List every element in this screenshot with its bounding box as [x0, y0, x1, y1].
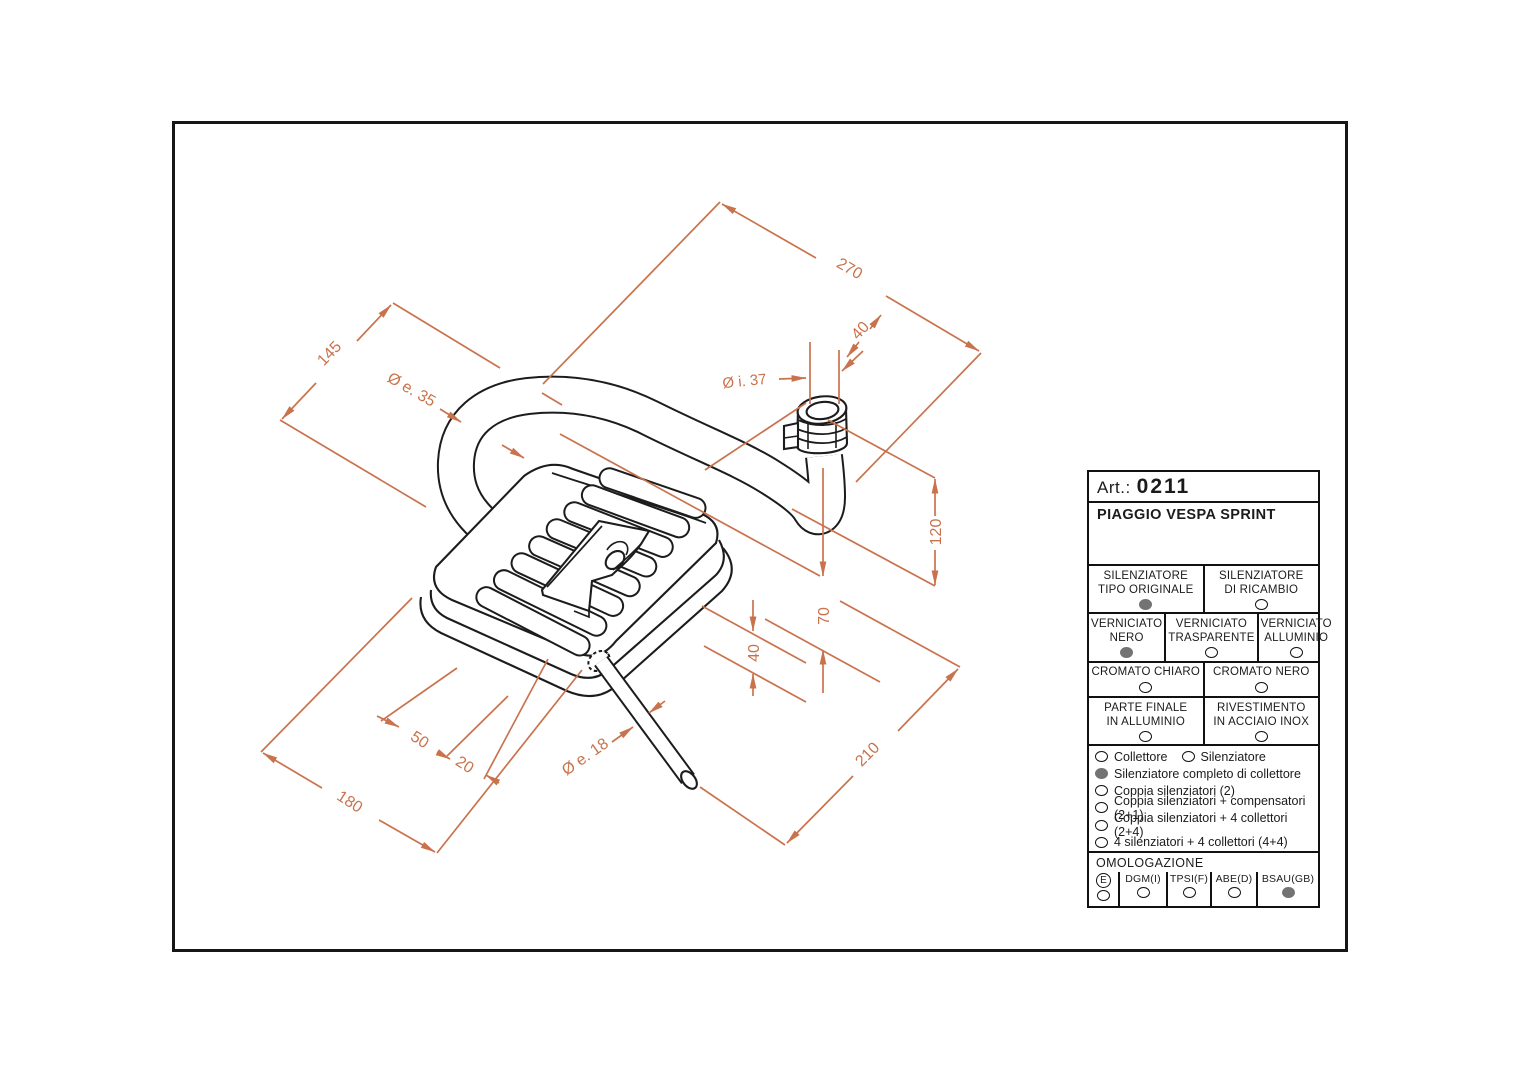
option-rivestimento-inox[interactable]: RIVESTIMENTOIN ACCIAIO INOX	[1203, 698, 1319, 744]
paint-finish-row: VERNICIATONERO VERNICIATOTRASPARENTE VER…	[1089, 614, 1318, 663]
dim-50: 50	[407, 728, 431, 752]
dim-inner-diameter-37: Ø i. 37	[722, 371, 768, 393]
tail-pipe	[601, 661, 700, 792]
material-row: PARTE FINALEIN ALLUMINIO RIVESTIMENTOIN …	[1089, 698, 1318, 746]
radio-verniciato-alluminio[interactable]	[1290, 647, 1303, 658]
dim-270: 270	[833, 255, 865, 283]
option-parte-finale-alluminio[interactable]: PARTE FINALEIN ALLUMINIO	[1089, 698, 1203, 744]
article-number: 0211	[1137, 475, 1191, 499]
option-cromato-nero[interactable]: CROMATO NERO	[1203, 663, 1319, 696]
kit-options-list: Collettore Silenziatore Silenziatore com…	[1089, 746, 1318, 853]
homologation-block: OMOLOGAZIONE E DGM(I) TPSI(F) ABE(D)	[1089, 853, 1318, 906]
silencer-type-row: SILENZIATORETIPO ORIGINALE SILENZIATORED…	[1089, 566, 1318, 614]
circled-e-icon: E	[1096, 873, 1111, 888]
radio-coppia-compensatori[interactable]	[1095, 802, 1108, 813]
option-silenziatore-tipo-originale[interactable]: SILENZIATORETIPO ORIGINALE	[1089, 566, 1203, 612]
article-row: Art.: 0211	[1089, 472, 1318, 503]
chrome-finish-row: CROMATO CHIARO CROMATO NERO	[1089, 663, 1318, 698]
dim-145: 145	[314, 338, 345, 369]
radio-homologation-dgm[interactable]	[1137, 887, 1150, 898]
homologation-entries: E DGM(I) TPSI(F) ABE(D) BSAU(GB)	[1089, 872, 1318, 906]
product-data-panel: Art.: 0211 PIAGGIO VESPA SPRINT SILENZIA…	[1087, 470, 1320, 908]
homologation-title: OMOLOGAZIONE	[1089, 853, 1318, 872]
radio-silenziatore-completo[interactable]	[1095, 768, 1108, 779]
radio-di-ricambio[interactable]	[1255, 599, 1268, 610]
radio-parte-finale[interactable]	[1139, 731, 1152, 742]
radio-homologation-bsau[interactable]	[1282, 887, 1295, 898]
dim-outer-diameter-18: Ø e. 18	[559, 735, 612, 779]
homologation-dgm[interactable]: DGM(I)	[1118, 872, 1166, 906]
radio-coppia-silenziatori[interactable]	[1095, 785, 1108, 796]
dim-outer-diameter-35: Ø e. 35	[384, 370, 438, 411]
article-label: Art.:	[1097, 478, 1131, 498]
dim-70: 70	[816, 607, 833, 625]
option-verniciato-trasparente[interactable]: VERNICIATOTRASPARENTE	[1164, 614, 1256, 661]
list-item: Collettore Silenziatore	[1095, 748, 1318, 765]
radio-homologation-e[interactable]	[1097, 890, 1110, 901]
radio-homologation-abe[interactable]	[1228, 887, 1241, 898]
list-item: Silenziatore completo di collettore	[1095, 765, 1318, 782]
radio-4-silenziatori[interactable]	[1095, 837, 1108, 848]
homologation-e[interactable]: E	[1089, 872, 1118, 906]
radio-cromato-nero[interactable]	[1255, 682, 1268, 693]
option-cromato-chiaro[interactable]: CROMATO CHIARO	[1089, 663, 1203, 696]
technical-drawing-sheet: 270 40 Ø i. 37 145 Ø e. 35 120 70 40 210…	[0, 0, 1519, 1075]
option-silenziatore-di-ricambio[interactable]: SILENZIATOREDI RICAMBIO	[1203, 566, 1319, 612]
muffler-assembly	[420, 394, 848, 792]
dim-120: 120	[928, 519, 945, 546]
list-item: Coppia silenziatori + 4 collettori (2+4)	[1095, 817, 1318, 834]
option-verniciato-alluminio[interactable]: VERNICIATOALLUMINIO	[1257, 614, 1334, 661]
model-name: PIAGGIO VESPA SPRINT	[1097, 507, 1276, 560]
homologation-bsau[interactable]: BSAU(GB)	[1256, 872, 1318, 906]
dim-180: 180	[334, 788, 366, 817]
radio-homologation-tpsi[interactable]	[1183, 887, 1196, 898]
model-row: PIAGGIO VESPA SPRINT	[1089, 503, 1318, 566]
radio-verniciato-nero[interactable]	[1120, 647, 1133, 658]
dim-210: 210	[852, 739, 883, 770]
dim-20: 20	[452, 753, 476, 777]
radio-rivestimento-inox[interactable]	[1255, 731, 1268, 742]
homologation-abe[interactable]: ABE(D)	[1210, 872, 1256, 906]
radio-verniciato-trasparente[interactable]	[1205, 647, 1218, 658]
radio-tipo-originale[interactable]	[1139, 599, 1152, 610]
radio-cromato-chiaro[interactable]	[1139, 682, 1152, 693]
homologation-tpsi[interactable]: TPSI(F)	[1166, 872, 1210, 906]
radio-collettore[interactable]	[1095, 751, 1108, 762]
option-verniciato-nero[interactable]: VERNICIATONERO	[1089, 614, 1164, 661]
list-item: 4 silenziatori + 4 collettori (4+4)	[1095, 834, 1318, 851]
dim-40-top: 40	[848, 319, 873, 344]
dim-40-bottom: 40	[746, 644, 763, 662]
radio-silenziatore[interactable]	[1182, 751, 1195, 762]
radio-coppia-4-collettori[interactable]	[1095, 820, 1108, 831]
